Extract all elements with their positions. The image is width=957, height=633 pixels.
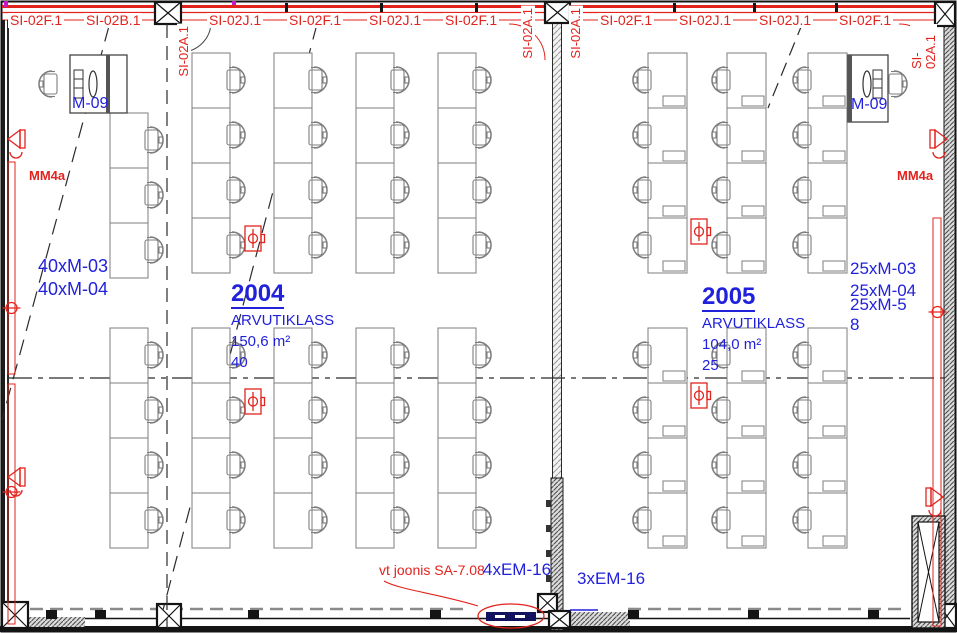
furniture-count-label: 40xM-04 [38,280,108,298]
desk-symbol [356,53,394,108]
desk-symbol [438,218,476,273]
furniture-count-label: 8 [850,316,859,333]
desk-symbol [110,168,148,223]
desk-symbol [648,218,687,273]
desk-symbol [110,328,148,383]
desk-symbol [192,218,230,273]
chair-symbol [889,71,907,97]
desk-symbol [192,493,230,548]
desk-symbol [356,438,394,493]
desk-symbol [808,383,847,438]
desk-symbol [438,438,476,493]
desk-symbol [438,163,476,218]
conduit-run [8,162,15,374]
junction-box-icon [245,226,265,251]
desk-symbol [648,438,687,493]
fire-rating-label: SI-02A.1 [521,6,535,61]
desk-symbol [192,108,230,163]
room-info-2005: 2005 ARVUTIKLASS 104,0 m² 25 [702,284,805,375]
desk-symbol [274,108,312,163]
desk-symbol [356,218,394,273]
desk-symbol [438,383,476,438]
fire-rating-label: SI-02J.1 [757,13,813,28]
room-number: 2005 [702,284,755,312]
desk-symbol [110,493,148,548]
desk-symbol [727,438,766,493]
leader-line [384,581,478,606]
fire-rating-label: SI-02A.1 [569,6,583,61]
desk-symbol [648,328,687,383]
desk-symbol [727,53,766,108]
room-type-label: ARVUTIKLASS [702,315,805,333]
desk-symbol [192,383,230,438]
furniture-count-label: 25xM-5 [850,296,907,313]
desk-symbol [110,438,148,493]
conduit-run [8,384,15,624]
junction-box-icon [691,219,711,244]
junction-box-icon [691,383,711,408]
chair-symbol [39,71,57,97]
desk-symbol [192,163,230,218]
speaker-system-label: MM4a [29,169,65,182]
emergency-fixture-label: 3xEM-16 [577,570,645,587]
desk-symbol [808,163,847,218]
teacher-station-label: M-09 [851,97,887,113]
room-info-2004: 2004 ARVUTIKLASS 150,6 m² 40 [231,281,334,372]
desk-symbol [274,438,312,493]
floor-box-element [486,612,536,621]
desk-symbol [438,108,476,163]
room-area: 150,6 m² [231,333,334,351]
speaker-icon [926,488,943,516]
floor-plan-drawing: SI-02F.1SI-02B.1SI-02J.1SI-02F.1SI-02J.1… [0,0,957,633]
furniture-count-label: 40xM-03 [38,257,108,275]
desk-symbol [274,383,312,438]
emergency-fixture-label: 4xEM-16 [483,561,551,578]
desk-symbol [808,438,847,493]
fire-rating-label: SI-02A.1 [177,24,191,79]
room-capacity: 25 [702,357,805,375]
desk-symbol [808,493,847,548]
plan-graphics [0,0,957,633]
junction-box-icon [245,389,265,414]
furniture-count-label: 25xM-03 [850,260,916,277]
room-capacity: 40 [231,354,334,372]
desk-symbol [438,53,476,108]
fire-rating-label: SI-02F.1 [837,13,893,28]
desk-symbol [727,493,766,548]
fire-rating-label: SI-02A.1 [910,24,937,71]
fire-rating-label: SI-02B.1 [84,13,142,28]
desk-symbol [648,108,687,163]
desk-symbol [438,328,476,383]
desk-symbol [727,383,766,438]
desk-symbol [808,218,847,273]
teacher-station-label: M-09 [72,96,108,112]
desk-symbol [727,163,766,218]
desk-symbol [274,53,312,108]
desk-symbol [356,383,394,438]
desk-symbol [356,328,394,383]
room-number: 2004 [231,281,284,309]
fire-rating-label: SI-02F.1 [8,13,64,28]
desk-symbol [808,328,847,383]
fire-rating-label: SI-02J.1 [677,13,733,28]
desk-symbol [356,163,394,218]
desk-symbol [274,493,312,548]
desk-symbol [808,53,847,108]
fire-rating-label: SI-02F.1 [287,13,343,28]
fire-rating-label: SI-02F.1 [598,13,654,28]
desk-symbol [727,218,766,273]
desk-symbol [648,163,687,218]
speaker-system-label: MM4a [897,169,933,182]
desk-symbol [192,328,230,383]
desk-symbol [808,108,847,163]
desk-symbol [274,163,312,218]
desk-symbol [110,223,148,278]
desk-symbol [648,53,687,108]
fire-rating-label: SI-02F.1 [443,13,499,28]
desk-symbol [727,108,766,163]
fire-rating-label: SI-02J.1 [367,13,423,28]
desk-symbol [356,108,394,163]
room-area: 104,0 m² [702,336,805,354]
fire-rating-label: SI-02J.1 [207,13,263,28]
desk-symbol [648,493,687,548]
desk-symbol [274,218,312,273]
desk-symbol [110,113,148,168]
reference-note: vt joonis SA-7.08 [379,563,485,577]
desk-symbol [192,53,230,108]
desk-symbol [438,493,476,548]
desk-symbol [192,438,230,493]
desk-symbol [356,493,394,548]
room-type-label: ARVUTIKLASS [231,312,334,330]
desk-symbol [110,383,148,438]
speaker-icon [8,130,25,158]
desk-symbol [648,383,687,438]
